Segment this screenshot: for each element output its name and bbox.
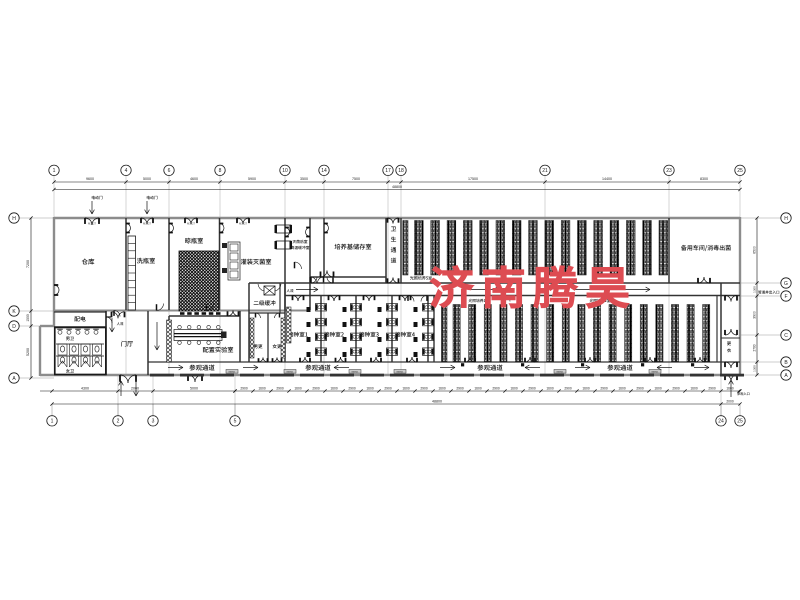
svg-text:M0921: M0921 xyxy=(287,371,294,373)
svg-text:1600: 1600 xyxy=(366,386,374,390)
svg-text:6: 6 xyxy=(168,168,171,174)
svg-text:14: 14 xyxy=(321,168,327,174)
svg-text:M0921: M0921 xyxy=(229,371,236,373)
svg-text:2900: 2900 xyxy=(600,386,608,390)
svg-text:4: 4 xyxy=(125,168,128,174)
svg-text:5000: 5000 xyxy=(190,386,198,390)
svg-text:M0921: M0921 xyxy=(652,371,659,373)
svg-text:7500: 7500 xyxy=(352,177,360,181)
svg-text:2000: 2000 xyxy=(131,386,139,390)
svg-text:8: 8 xyxy=(219,168,222,174)
svg-text:4300: 4300 xyxy=(81,386,89,390)
svg-text:D: D xyxy=(12,324,16,330)
svg-text:1600: 1600 xyxy=(402,386,410,390)
svg-text:2: 2 xyxy=(117,419,120,425)
svg-text:2700: 2700 xyxy=(753,344,757,351)
svg-text:1: 1 xyxy=(53,168,56,174)
svg-text:1300: 1300 xyxy=(753,286,757,293)
svg-text:3: 3 xyxy=(152,419,155,425)
svg-text:18: 18 xyxy=(398,168,404,174)
svg-text:M0921: M0921 xyxy=(397,371,404,373)
svg-text:M1527: M1527 xyxy=(239,222,247,226)
svg-text:1600: 1600 xyxy=(438,386,446,390)
svg-text:3900: 3900 xyxy=(753,311,757,319)
svg-text:1500: 1500 xyxy=(26,314,30,322)
svg-text:1600: 1600 xyxy=(330,386,338,390)
svg-text:M0921: M0921 xyxy=(557,371,564,373)
svg-text:2900: 2900 xyxy=(492,386,500,390)
svg-text:F: F xyxy=(784,294,787,300)
svg-text:10: 10 xyxy=(282,168,288,174)
svg-text:1600: 1600 xyxy=(690,386,698,390)
svg-text:17500: 17500 xyxy=(468,177,478,181)
svg-text:1600: 1600 xyxy=(474,386,482,390)
svg-text:5900: 5900 xyxy=(248,177,256,181)
svg-text:2900: 2900 xyxy=(240,386,248,390)
svg-text:4600: 4600 xyxy=(190,177,198,181)
svg-text:1600: 1600 xyxy=(618,386,626,390)
svg-text:M0921: M0921 xyxy=(352,371,359,373)
svg-text:48800: 48800 xyxy=(432,399,442,403)
svg-text:2000: 2000 xyxy=(726,399,734,403)
svg-text:2900: 2900 xyxy=(456,386,464,390)
svg-text:5000: 5000 xyxy=(143,177,151,181)
svg-text:1600: 1600 xyxy=(294,386,302,390)
svg-text:1: 1 xyxy=(51,419,54,425)
svg-text:2900: 2900 xyxy=(384,386,392,390)
svg-text:2900: 2900 xyxy=(672,386,680,390)
svg-text:1600: 1600 xyxy=(546,386,554,390)
svg-text:H: H xyxy=(784,216,788,222)
svg-text:M3027: M3027 xyxy=(88,222,96,226)
svg-text:2900: 2900 xyxy=(348,386,356,390)
svg-text:24: 24 xyxy=(718,419,724,425)
svg-text:2900: 2900 xyxy=(636,386,644,390)
svg-text:17: 17 xyxy=(385,168,391,174)
svg-text:5: 5 xyxy=(234,419,237,425)
svg-text:7200: 7200 xyxy=(26,260,30,268)
svg-text:25: 25 xyxy=(737,419,743,425)
svg-text:2900: 2900 xyxy=(276,386,284,390)
svg-text:H: H xyxy=(12,216,16,222)
svg-text:3500: 3500 xyxy=(300,177,308,181)
svg-text:G: G xyxy=(784,281,788,287)
svg-text:14400: 14400 xyxy=(602,177,612,181)
svg-text:25: 25 xyxy=(737,168,743,174)
svg-text:23: 23 xyxy=(666,168,672,174)
svg-text:2900: 2900 xyxy=(528,386,536,390)
svg-text:1600: 1600 xyxy=(654,386,662,390)
svg-text:6500: 6500 xyxy=(753,246,757,254)
svg-text:1600: 1600 xyxy=(258,386,266,390)
svg-text:48800: 48800 xyxy=(392,185,402,189)
svg-text:2900: 2900 xyxy=(420,386,428,390)
svg-text:21: 21 xyxy=(542,168,548,174)
svg-text:8300: 8300 xyxy=(700,177,708,181)
svg-text:9600: 9600 xyxy=(86,177,94,181)
svg-text:2900: 2900 xyxy=(708,386,716,390)
svg-text:2900: 2900 xyxy=(564,386,572,390)
svg-text:1600: 1600 xyxy=(726,386,734,390)
svg-text:1300: 1300 xyxy=(753,365,757,372)
svg-text:1600: 1600 xyxy=(582,386,590,390)
svg-text:2900: 2900 xyxy=(312,386,320,390)
svg-text:M1527: M1527 xyxy=(187,222,195,226)
svg-text:5200: 5200 xyxy=(26,348,30,356)
svg-text:M1527: M1527 xyxy=(143,222,151,226)
svg-text:1600: 1600 xyxy=(510,386,518,390)
svg-text:C: C xyxy=(784,333,788,339)
